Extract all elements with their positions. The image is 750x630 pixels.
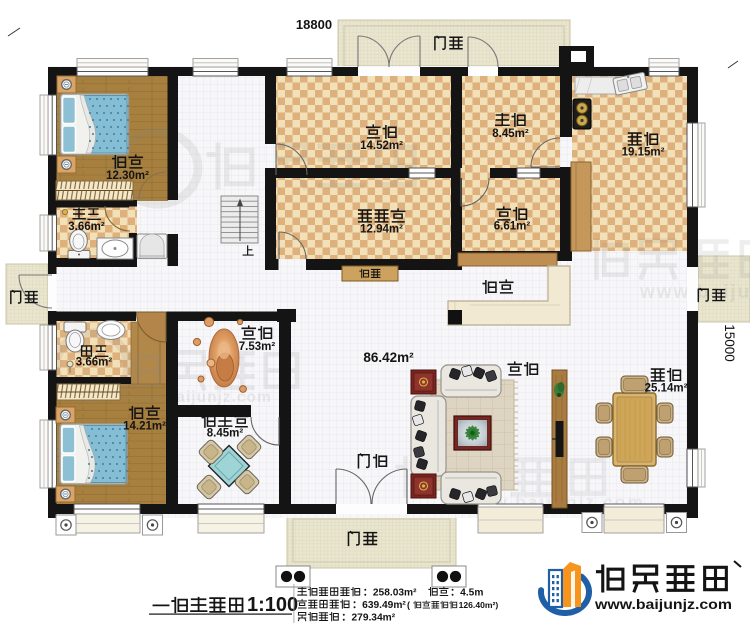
svg-text:1:100: 1:100	[247, 594, 298, 616]
svg-text:12.94m²: 12.94m²	[360, 224, 403, 236]
svg-text:12.30m²: 12.30m²	[106, 170, 149, 182]
svg-text:6.61m²: 6.61m²	[494, 221, 531, 233]
svg-text:14.21m²: 14.21m²	[123, 421, 166, 433]
svg-text:8.45m²: 8.45m²	[207, 428, 244, 440]
svg-text:：4.5m: ：4.5m	[450, 588, 483, 599]
svg-text:19.15m²: 19.15m²	[622, 147, 665, 159]
svg-text:：639.49m²: ：639.49m²	[352, 600, 406, 611]
svg-text:：258.03m²: ：258.03m²	[363, 588, 417, 599]
svg-text:86.42m²: 86.42m²	[363, 350, 414, 365]
svg-text:25.14m²: 25.14m²	[645, 383, 688, 395]
svg-text:3.66m²: 3.66m²	[68, 221, 105, 233]
svg-text:www.baijunjz.com: www.baijunjz.com	[121, 389, 272, 406]
svg-text:15000: 15000	[722, 324, 737, 362]
svg-text:8.45m²: 8.45m²	[492, 128, 529, 140]
svg-text:3.66m²: 3.66m²	[76, 357, 113, 369]
svg-text:18800: 18800	[296, 17, 332, 32]
svg-text:(: (	[407, 600, 410, 610]
svg-text:126.40m²): 126.40m²)	[459, 600, 499, 610]
svg-text:www.baijunjz.com: www.baijunjz.com	[594, 596, 732, 612]
svg-text:：279.34m²: ：279.34m²	[341, 613, 395, 624]
svg-text:7.53m²: 7.53m²	[239, 341, 276, 353]
svg-text:14.52m²: 14.52m²	[360, 140, 403, 152]
